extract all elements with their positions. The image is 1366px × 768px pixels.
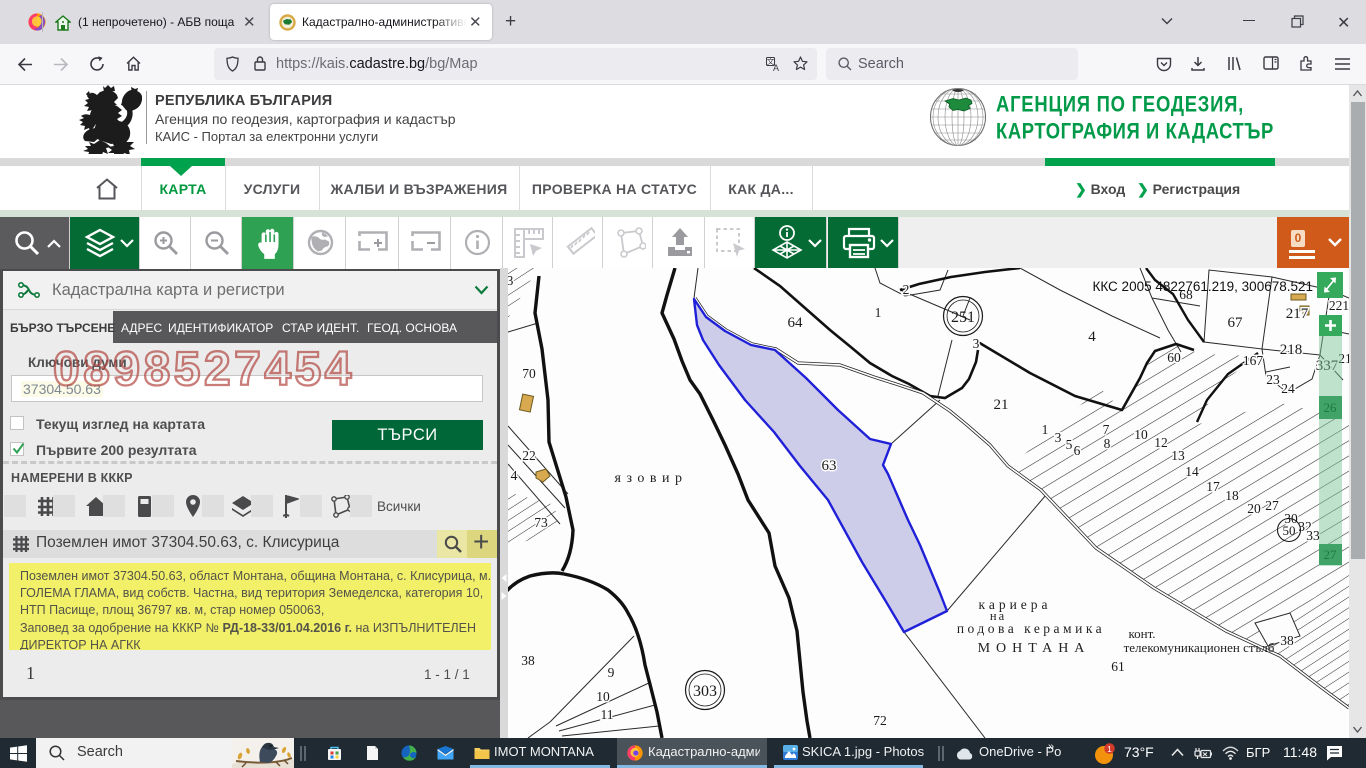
svg-text:26: 26 [1324, 400, 1338, 415]
svg-text:8: 8 [1104, 436, 1111, 451]
svg-text:303: 303 [693, 683, 717, 700]
svg-text:22: 22 [522, 448, 536, 463]
svg-text:23: 23 [1266, 372, 1280, 387]
svg-text:70: 70 [522, 366, 536, 381]
svg-text:17: 17 [1206, 479, 1220, 494]
svg-text:11: 11 [601, 707, 614, 722]
svg-text:A: A [773, 63, 779, 72]
svg-text:72: 72 [873, 713, 887, 728]
svg-text:10: 10 [596, 689, 610, 704]
svg-text:218: 218 [1280, 342, 1303, 358]
svg-text:МОНТАНА: МОНТАНА [978, 641, 1091, 656]
svg-text:217: 217 [1286, 306, 1309, 322]
svg-text:21: 21 [994, 397, 1009, 413]
svg-text:язовир: язовир [615, 471, 688, 486]
svg-text:24: 24 [1281, 381, 1295, 396]
svg-text:64: 64 [788, 315, 804, 331]
svg-text:221: 221 [1329, 298, 1349, 313]
svg-text:12: 12 [1154, 435, 1168, 450]
svg-text:9: 9 [608, 665, 615, 680]
svg-text:ККС 2005 4822761.219, 300678.5: ККС 2005 4822761.219, 300678.521 [1092, 279, 1313, 294]
svg-text:подова керамика: подова керамика [957, 621, 1105, 636]
svg-text:телекомуникационен стълб: телекомуникационен стълб [1124, 640, 1275, 655]
svg-text:3: 3 [973, 336, 980, 351]
svg-text:2: 2 [903, 282, 910, 297]
svg-text:4: 4 [1088, 329, 1096, 345]
svg-text:63: 63 [822, 458, 837, 474]
svg-text:1: 1 [875, 305, 882, 320]
svg-text:конт.: конт. [1128, 626, 1155, 641]
svg-text:14: 14 [1185, 464, 1199, 479]
svg-text:73: 73 [534, 515, 548, 530]
svg-text:67: 67 [1228, 315, 1244, 331]
svg-text:10: 10 [1134, 427, 1148, 442]
svg-text:50: 50 [1283, 523, 1296, 538]
svg-text:3: 3 [1055, 430, 1062, 445]
svg-text:5: 5 [1066, 437, 1073, 452]
svg-text:27: 27 [1265, 498, 1279, 513]
svg-text:13: 13 [1171, 448, 1185, 463]
svg-text:33: 33 [1306, 528, 1320, 543]
svg-text:20: 20 [1247, 501, 1261, 516]
svg-text:4: 4 [511, 468, 518, 483]
svg-text:18: 18 [1225, 488, 1239, 503]
svg-text:1: 1 [1107, 744, 1112, 754]
svg-text:38: 38 [1280, 633, 1294, 648]
svg-text:251: 251 [951, 309, 975, 326]
svg-text:60: 60 [1167, 350, 1181, 365]
svg-text:167: 167 [1243, 353, 1264, 368]
svg-text:1: 1 [1042, 422, 1049, 437]
svg-text:27: 27 [1324, 547, 1338, 562]
svg-text:7: 7 [1103, 422, 1110, 437]
svg-text:6: 6 [1074, 443, 1081, 458]
svg-text:38: 38 [521, 653, 535, 668]
svg-text:61: 61 [1111, 659, 1125, 674]
